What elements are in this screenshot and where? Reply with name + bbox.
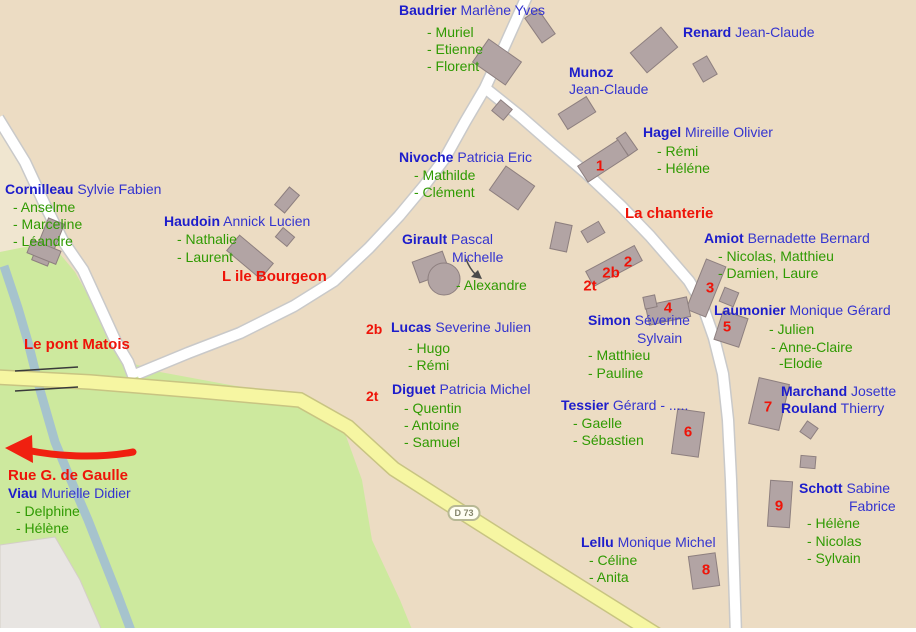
family-label-nivoche: Nivoche Patricia Eric	[399, 149, 532, 165]
child-name: - Rémi	[408, 357, 449, 373]
surname: Simon	[588, 312, 631, 328]
family-label-amiot: Amiot Bernadette Bernard	[704, 230, 870, 246]
marker-5: 5	[723, 319, 731, 336]
surname: Marchand	[781, 383, 847, 399]
given-names: Bernadette Bernard	[748, 230, 870, 246]
surname: Rouland	[781, 400, 837, 416]
child-name: - Hélène	[16, 520, 69, 536]
given-names: Severine Julien	[435, 319, 531, 335]
child-name: - Delphine	[16, 503, 80, 519]
given-names: Marlène Yves	[460, 2, 545, 18]
surname: Lellu	[581, 534, 614, 550]
child-name: - Etienne	[427, 41, 483, 57]
place-label-chanterie: La chanterie	[625, 205, 713, 222]
given-names: Jean-Claude	[735, 24, 814, 40]
child-name: - Gaelle	[573, 415, 622, 431]
surname: Amiot	[704, 230, 744, 246]
child-name: - Quentin	[404, 400, 462, 416]
child-name: - Samuel	[404, 434, 460, 450]
family-label-tessier: Tessier Gérard - .....	[561, 397, 688, 413]
surname: Munoz	[569, 64, 613, 80]
child-name: - Anselme	[13, 199, 75, 215]
child-name: - Antoine	[404, 417, 459, 433]
marker-2b-prefix: 2b	[366, 321, 382, 337]
child-name: - Laurent	[177, 249, 233, 265]
marker-1: 1	[596, 158, 604, 175]
given-names: Gérard - .....	[613, 397, 688, 413]
given-names: Annick Lucien	[223, 213, 310, 229]
child-name: - Anne-Claire	[771, 339, 853, 355]
given-names: Mireille Olivier	[685, 124, 773, 140]
family-label-rouland: Rouland Thierry	[781, 400, 884, 416]
child-name: -Elodie	[779, 355, 823, 371]
child-name: - Léandre	[13, 233, 73, 249]
child-name: - Pauline	[588, 365, 643, 381]
place-label-pont-matois: Le pont Matois	[24, 336, 130, 353]
child-name: - Muriel	[427, 24, 474, 40]
surname: Renard	[683, 24, 731, 40]
given-names: Sylvie Fabien	[77, 181, 161, 197]
given-names: Patricia Eric	[457, 149, 532, 165]
family-label-schott: Schott Sabine	[799, 480, 890, 496]
given-names: Monique Gérard	[789, 302, 890, 318]
marker-2: 2	[624, 254, 632, 271]
child-name: - Anita	[589, 569, 629, 585]
family-label-lellu: Lellu Monique Michel	[581, 534, 716, 550]
surname: Girault	[402, 231, 447, 247]
child-name: - Céline	[589, 552, 637, 568]
building	[643, 295, 657, 309]
marker-2b: 2b	[602, 265, 620, 282]
child-name: - Florent	[427, 58, 479, 74]
road-ref-shield: D 73	[447, 505, 480, 521]
place-label-ile-bourgeon: L ile Bourgeon	[222, 268, 327, 285]
given-names: Monique Michel	[618, 534, 716, 550]
child-name: - Rémi	[657, 143, 698, 159]
child-name: - Hugo	[408, 340, 450, 356]
family-label-girault: Girault Pascal	[402, 231, 493, 247]
child-name: - Sébastien	[573, 432, 644, 448]
family-label-laumonier: Laumonier Monique Gérard	[714, 302, 891, 318]
given-names: Thierry	[841, 400, 885, 416]
given-names: Fabrice	[849, 498, 896, 514]
family-label-lucas: Lucas Severine Julien	[391, 319, 531, 335]
family-label-munoz: Munoz	[569, 64, 613, 80]
marker-7: 7	[764, 399, 772, 416]
building	[800, 455, 816, 468]
child-name: - Matthieu	[588, 347, 650, 363]
surname: Baudrier	[399, 2, 457, 18]
marker-9: 9	[775, 498, 783, 515]
child-name: - Julien	[769, 321, 814, 337]
child-name: - Nicolas, Matthieu	[718, 248, 834, 264]
child-name: - Alexandre	[456, 277, 527, 293]
given-names: Jean-Claude	[569, 81, 648, 97]
given-names: Pascal	[451, 231, 493, 247]
given-names: Murielle Didier	[41, 485, 130, 501]
marker-2t-prefix: 2t	[366, 388, 378, 404]
family-label-renard: Renard Jean-Claude	[683, 24, 815, 40]
marker-3: 3	[706, 280, 714, 297]
surname: Tessier	[561, 397, 609, 413]
given-names: Patricia Michel	[439, 381, 530, 397]
place-label-rue-gaulle: Rue G. de Gaulle	[8, 467, 128, 484]
child-name: - Hélène	[807, 515, 860, 531]
surname: Schott	[799, 480, 843, 496]
given-names: Josette	[851, 383, 896, 399]
surname: Haudoin	[164, 213, 220, 229]
family-label-simon: Simon Séverine	[588, 312, 690, 328]
family-label-diguet: Diguet Patricia Michel	[392, 381, 530, 397]
child-name: - Sylvain	[807, 550, 861, 566]
map-canvas[interactable]: L ile Bourgeon La chanterie Le pont Mato…	[0, 0, 916, 632]
child-name: - Clément	[414, 184, 475, 200]
surname: Nivoche	[399, 149, 453, 165]
given-names: Michelle	[452, 249, 503, 265]
map-edge	[0, 628, 916, 632]
child-name: - Héléne	[657, 160, 710, 176]
given-names: Séverine	[635, 312, 690, 328]
surname: Laumonier	[714, 302, 786, 318]
child-name: - Mathilde	[414, 167, 475, 183]
surname: Viau	[8, 485, 37, 501]
family-label-hagel: Hagel Mireille Olivier	[643, 124, 773, 140]
family-label-cornilleau: Cornilleau Sylvie Fabien	[5, 181, 161, 197]
child-name: - Damien, Laure	[718, 265, 818, 281]
family-label-viau: Viau Murielle Didier	[8, 485, 131, 501]
family-label-haudoin: Haudoin Annick Lucien	[164, 213, 310, 229]
surname: Lucas	[391, 319, 431, 335]
marker-2t: 2t	[583, 278, 596, 295]
child-name: - Nathalie	[177, 231, 237, 247]
child-name: - Nicolas	[807, 533, 861, 549]
marker-8: 8	[702, 562, 710, 579]
family-label-marchand: Marchand Josette	[781, 383, 896, 399]
marker-6: 6	[684, 424, 692, 441]
family-label-baudrier: Baudrier Marlène Yves	[399, 2, 545, 18]
surname: Hagel	[643, 124, 681, 140]
child-name: - Marceline	[13, 216, 82, 232]
given-names: Sylvain	[637, 330, 682, 346]
surname: Diguet	[392, 381, 436, 397]
surname: Cornilleau	[5, 181, 73, 197]
given-names: Sabine	[846, 480, 890, 496]
